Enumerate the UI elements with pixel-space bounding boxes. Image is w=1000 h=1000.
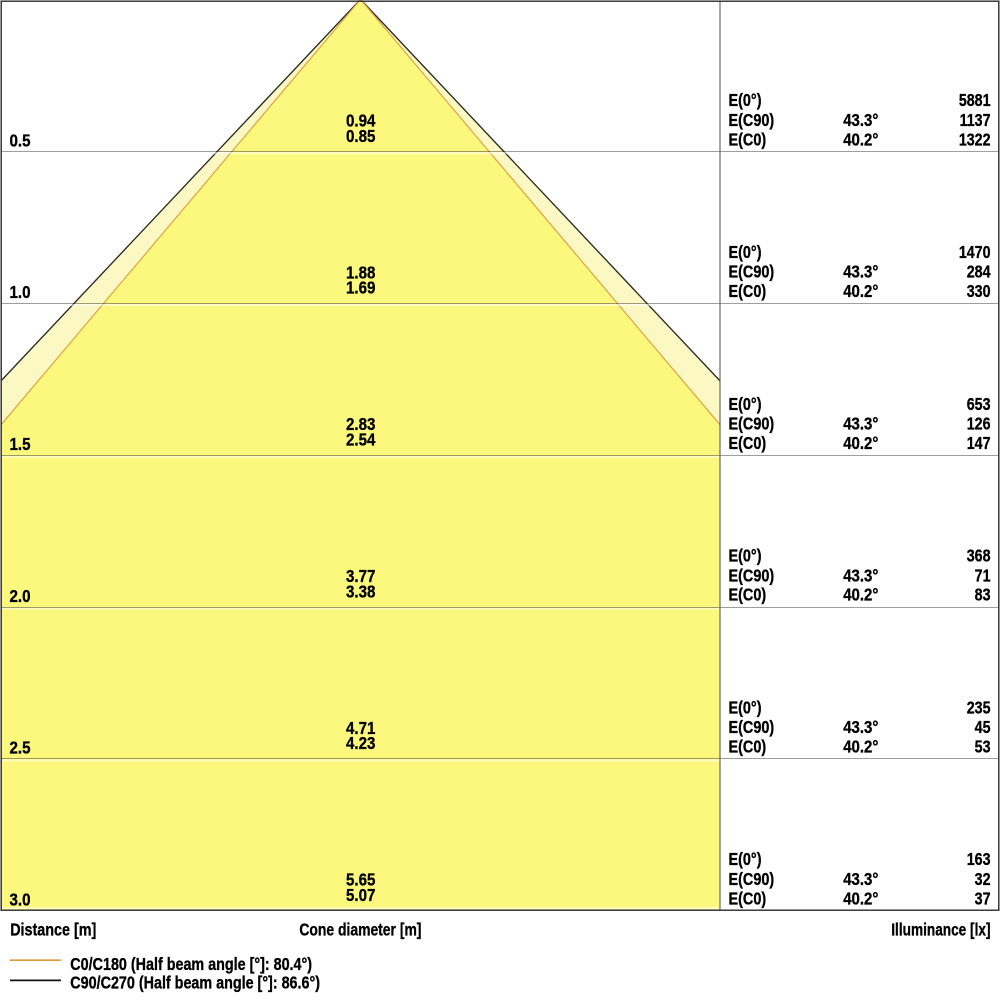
svg-text:4.23: 4.23: [346, 734, 375, 753]
svg-text:32: 32: [975, 871, 991, 890]
svg-text:2.54: 2.54: [346, 430, 376, 449]
svg-text:E(C0): E(C0): [729, 585, 767, 605]
svg-text:43.3°: 43.3°: [843, 263, 878, 282]
svg-text:43.3°: 43.3°: [843, 566, 878, 585]
svg-text:37: 37: [975, 890, 991, 909]
svg-text:0.5: 0.5: [10, 131, 31, 150]
svg-text:E(C90): E(C90): [729, 111, 775, 131]
svg-text:E(0°): E(0°): [729, 850, 762, 870]
svg-text:Cone diameter [m]: Cone diameter [m]: [299, 921, 421, 940]
svg-text:5.07: 5.07: [346, 886, 375, 905]
svg-text:Distance [m]: Distance [m]: [10, 920, 96, 940]
svg-text:284: 284: [967, 263, 991, 282]
svg-text:E(C0): E(C0): [729, 889, 767, 909]
svg-text:40.2°: 40.2°: [843, 737, 878, 756]
svg-text:368: 368: [967, 547, 991, 566]
svg-text:71: 71: [975, 567, 991, 586]
svg-text:E(C0): E(C0): [729, 130, 767, 150]
svg-text:1137: 1137: [960, 112, 991, 131]
svg-text:Illuminance [lx]: Illuminance [lx]: [891, 921, 990, 940]
svg-text:E(0°): E(0°): [729, 698, 762, 718]
svg-text:E(0°): E(0°): [729, 394, 762, 414]
svg-text:E(C90): E(C90): [729, 262, 775, 282]
svg-text:235: 235: [967, 699, 991, 718]
svg-text:E(C90): E(C90): [729, 566, 775, 586]
svg-text:126: 126: [967, 415, 991, 434]
svg-text:163: 163: [967, 851, 991, 870]
svg-text:40.2°: 40.2°: [843, 889, 878, 908]
svg-text:40.2°: 40.2°: [843, 434, 878, 453]
svg-text:0.85: 0.85: [346, 127, 375, 146]
svg-text:E(0°): E(0°): [729, 546, 762, 566]
svg-text:E(C0): E(C0): [729, 434, 767, 454]
svg-text:330: 330: [967, 283, 991, 302]
svg-text:5881: 5881: [959, 92, 991, 111]
svg-text:C0/C180 (Half beam angle [°]:: C0/C180 (Half beam angle [°]: 80.4°): [70, 954, 312, 974]
svg-text:E(C0): E(C0): [729, 737, 767, 757]
svg-text:2.0: 2.0: [10, 587, 31, 606]
svg-text:43.3°: 43.3°: [843, 870, 878, 889]
svg-text:3.0: 3.0: [10, 890, 31, 909]
svg-text:E(0°): E(0°): [729, 243, 762, 263]
svg-text:3.38: 3.38: [346, 582, 375, 601]
svg-text:40.2°: 40.2°: [843, 586, 878, 605]
svg-text:1.69: 1.69: [346, 279, 375, 298]
svg-text:43.3°: 43.3°: [843, 111, 878, 130]
svg-text:C90/C270 (Half beam angle [°]:: C90/C270 (Half beam angle [°]: 86.6°): [70, 973, 320, 993]
svg-text:1470: 1470: [959, 244, 991, 263]
svg-text:E(C90): E(C90): [729, 718, 775, 738]
svg-text:E(0°): E(0°): [729, 91, 762, 111]
svg-text:653: 653: [967, 396, 991, 415]
svg-text:40.2°: 40.2°: [843, 282, 878, 301]
svg-text:E(C90): E(C90): [729, 870, 775, 890]
svg-text:1.5: 1.5: [10, 435, 31, 454]
svg-text:1.0: 1.0: [10, 283, 31, 302]
svg-text:40.2°: 40.2°: [843, 130, 878, 149]
svg-text:53: 53: [975, 738, 991, 757]
svg-text:1322: 1322: [959, 131, 991, 150]
svg-text:2.5: 2.5: [10, 739, 31, 758]
svg-text:83: 83: [975, 586, 991, 605]
svg-text:43.3°: 43.3°: [843, 718, 878, 737]
svg-text:E(C90): E(C90): [729, 414, 775, 434]
svg-text:E(C0): E(C0): [729, 282, 767, 302]
svg-text:45: 45: [975, 719, 991, 738]
svg-text:147: 147: [967, 435, 991, 454]
svg-text:43.3°: 43.3°: [843, 414, 878, 433]
